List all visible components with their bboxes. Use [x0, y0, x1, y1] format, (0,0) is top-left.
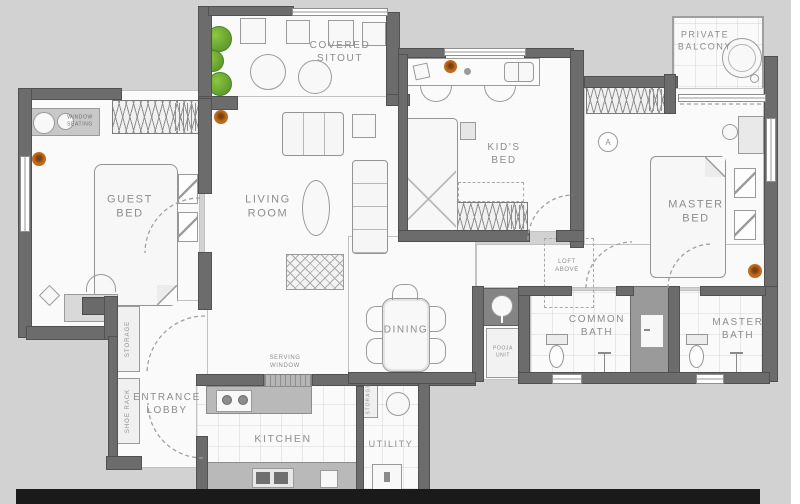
label-kids-bed: KID'S BED [487, 141, 520, 167]
label-dining: DINING [384, 324, 429, 337]
floor-plan: COVERED SITOUT PRIVATE BALCONY GUEST BED… [0, 0, 800, 504]
bottom-bar [16, 489, 760, 504]
door-arc-guest [145, 198, 200, 253]
label-window-seating: WINDOW SEATING [67, 114, 93, 128]
label-shoe-rack: SHOE RACK [124, 389, 132, 433]
label-master-bed: MASTER BED [668, 198, 723, 227]
label-entrance-lobby: ENTRANCE LOBBY [133, 391, 201, 417]
label-common-bath: COMMON BATH [569, 313, 625, 339]
wall-marker-a: A [598, 132, 618, 152]
door-arc-lobby [147, 316, 205, 374]
label-private-balcony: PRIVATE BALCONY [678, 29, 732, 52]
right-edge-strip [791, 0, 800, 504]
wall-marker-letter: A [605, 138, 610, 147]
label-serving-window: SERVING WINDOW [269, 354, 300, 370]
label-loft-above: LOFT ABOVE [555, 258, 579, 274]
door-arc-kids [528, 195, 573, 240]
label-master-bath: MASTER BATH [712, 316, 763, 342]
label-covered-sitout: COVERED SITOUT [310, 39, 371, 65]
label-pooja-unit: POOJA UNIT [493, 345, 513, 359]
label-storage-lobby: STORAGE [124, 321, 132, 357]
label-living-room: LIVING ROOM [245, 193, 291, 222]
door-arc-bath [668, 244, 712, 288]
door-arc-master [586, 242, 632, 288]
label-utility: UTILITY [369, 439, 414, 451]
label-storage-utility: STORAGE [366, 383, 373, 414]
label-kitchen: KITCHEN [254, 433, 311, 447]
label-guest-bed: GUEST BED [107, 193, 153, 222]
door-swing-overlay [0, 0, 800, 504]
